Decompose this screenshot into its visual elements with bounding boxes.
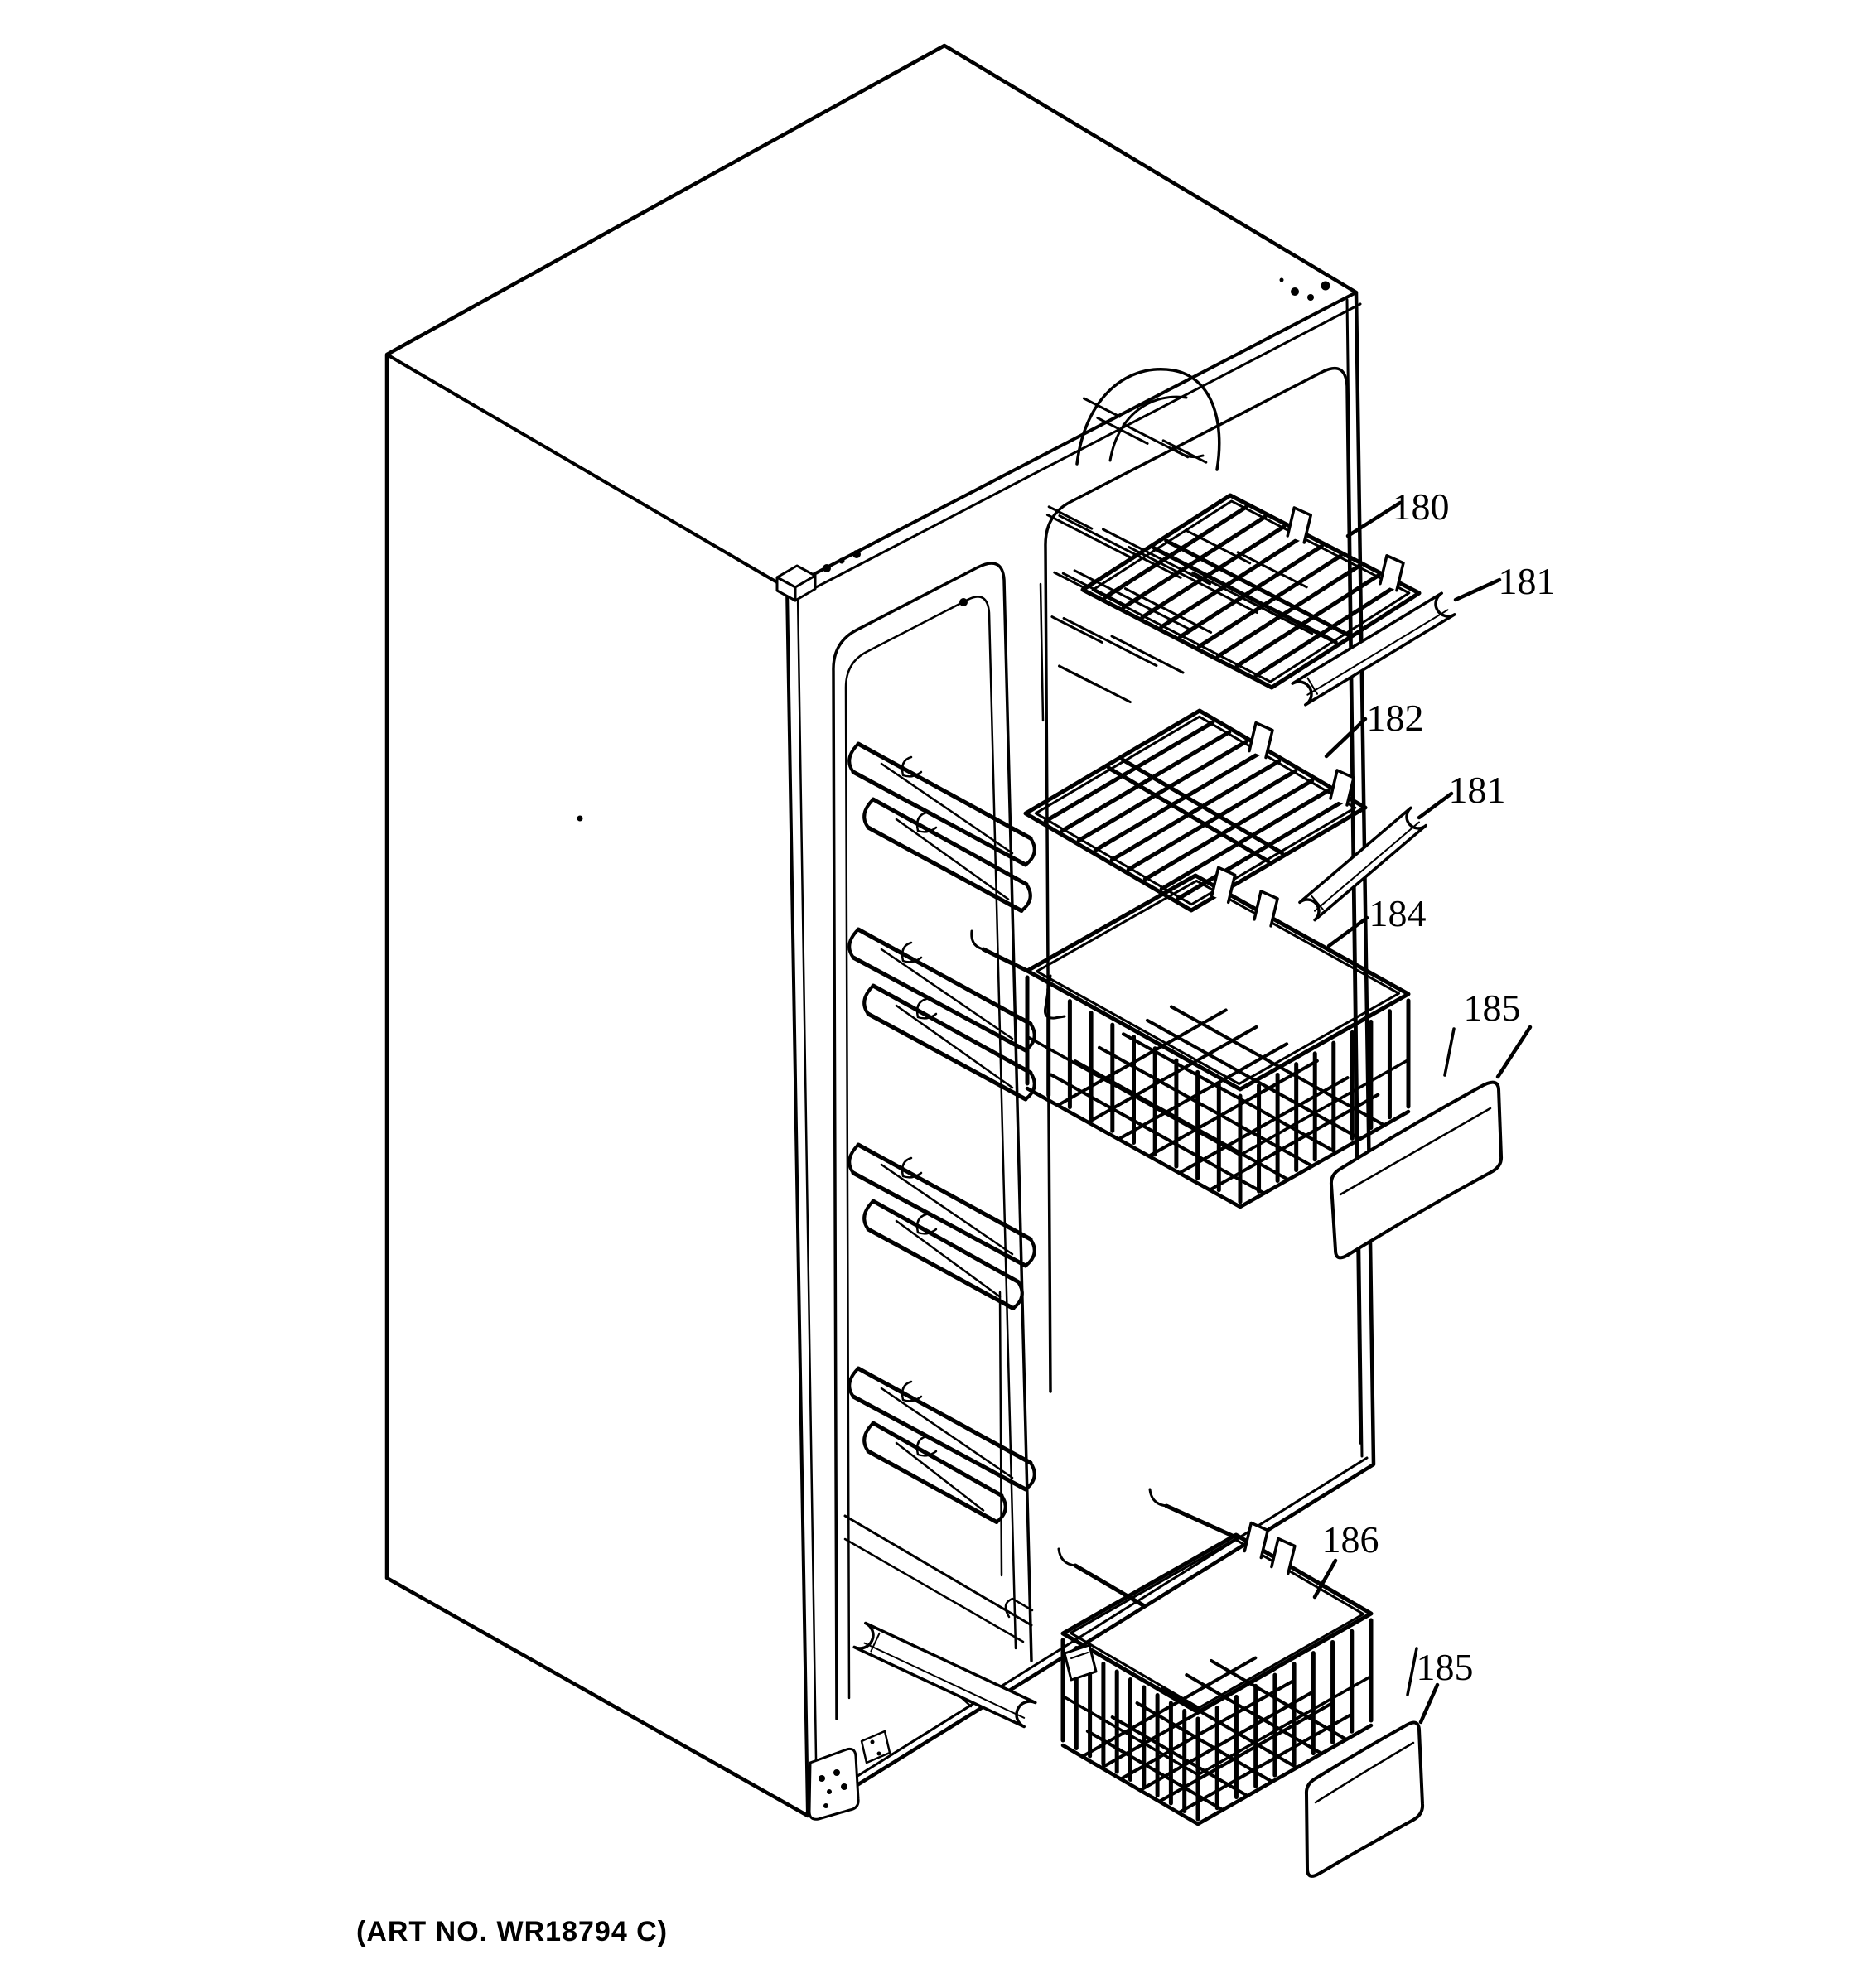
leader-line-185-lower bbox=[1421, 1685, 1437, 1722]
callout-186: 186 bbox=[1322, 1518, 1379, 1561]
callout-181-lower: 181 bbox=[1449, 769, 1506, 811]
leader-line-185-upper bbox=[1498, 1027, 1530, 1077]
leader-line-181-lower bbox=[1419, 794, 1451, 818]
cabinet bbox=[387, 46, 1374, 1819]
callout-181-upper: 181 bbox=[1499, 560, 1556, 602]
art-number: (ART NO. WR18794 C) bbox=[356, 1916, 668, 1947]
cabinet-silhouette bbox=[387, 46, 1374, 1816]
callout-185-upper: 185 bbox=[1464, 987, 1521, 1029]
callout-184: 184 bbox=[1369, 892, 1427, 934]
leader-line-181-upper bbox=[1456, 580, 1499, 600]
refrigerator-parts-diagram: 180 181 182 181 184 185 186 185 (ART NO.… bbox=[0, 0, 1864, 1988]
callout-180: 180 bbox=[1393, 485, 1450, 528]
hinge-plate bbox=[809, 1749, 858, 1819]
callout-185-lower: 185 bbox=[1417, 1646, 1474, 1688]
callout-182: 182 bbox=[1367, 697, 1424, 739]
part-drawer-front-185-lower bbox=[1306, 1722, 1422, 1875]
